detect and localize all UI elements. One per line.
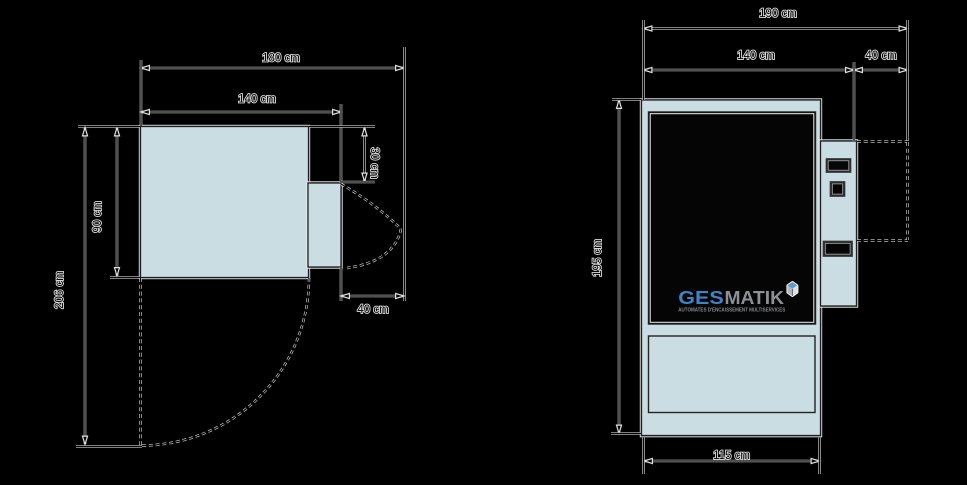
svg-text:140 cm: 140 cm [238, 94, 276, 106]
svg-text:GES: GES [678, 288, 724, 308]
svg-text:MATIK: MATIK [725, 288, 785, 308]
svg-text:206 cm: 206 cm [54, 271, 66, 309]
svg-text:140 cm: 140 cm [737, 50, 775, 62]
svg-text:40 cm: 40 cm [865, 50, 896, 62]
svg-text:AUTOMATES D'ENCAISSEMENT MULT: AUTOMATES D'ENCAISSEMENT MULTISERVICES [678, 308, 785, 314]
svg-text:90 cm: 90 cm [92, 201, 104, 232]
svg-text:195 cm: 195 cm [592, 239, 604, 277]
svg-text:30 cm: 30 cm [368, 147, 380, 178]
svg-text:180 cm: 180 cm [262, 53, 300, 65]
svg-text:190 cm: 190 cm [759, 8, 797, 20]
svg-text:115 cm: 115 cm [713, 450, 750, 462]
svg-text:40 cm: 40 cm [357, 304, 388, 316]
